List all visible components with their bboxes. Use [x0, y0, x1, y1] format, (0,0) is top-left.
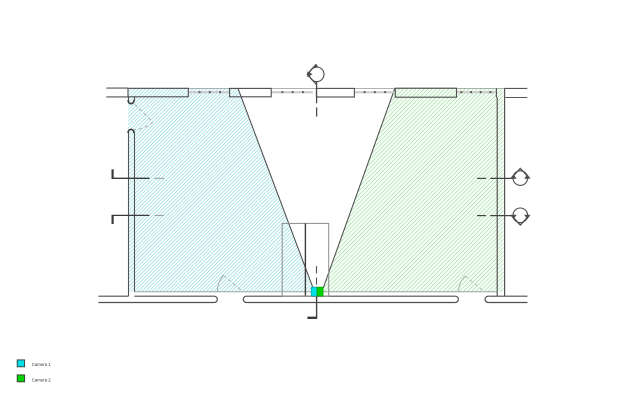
svg-text:Camera 1: Camera 1	[32, 362, 51, 367]
svg-text:Camera 2: Camera 2	[32, 377, 51, 382]
